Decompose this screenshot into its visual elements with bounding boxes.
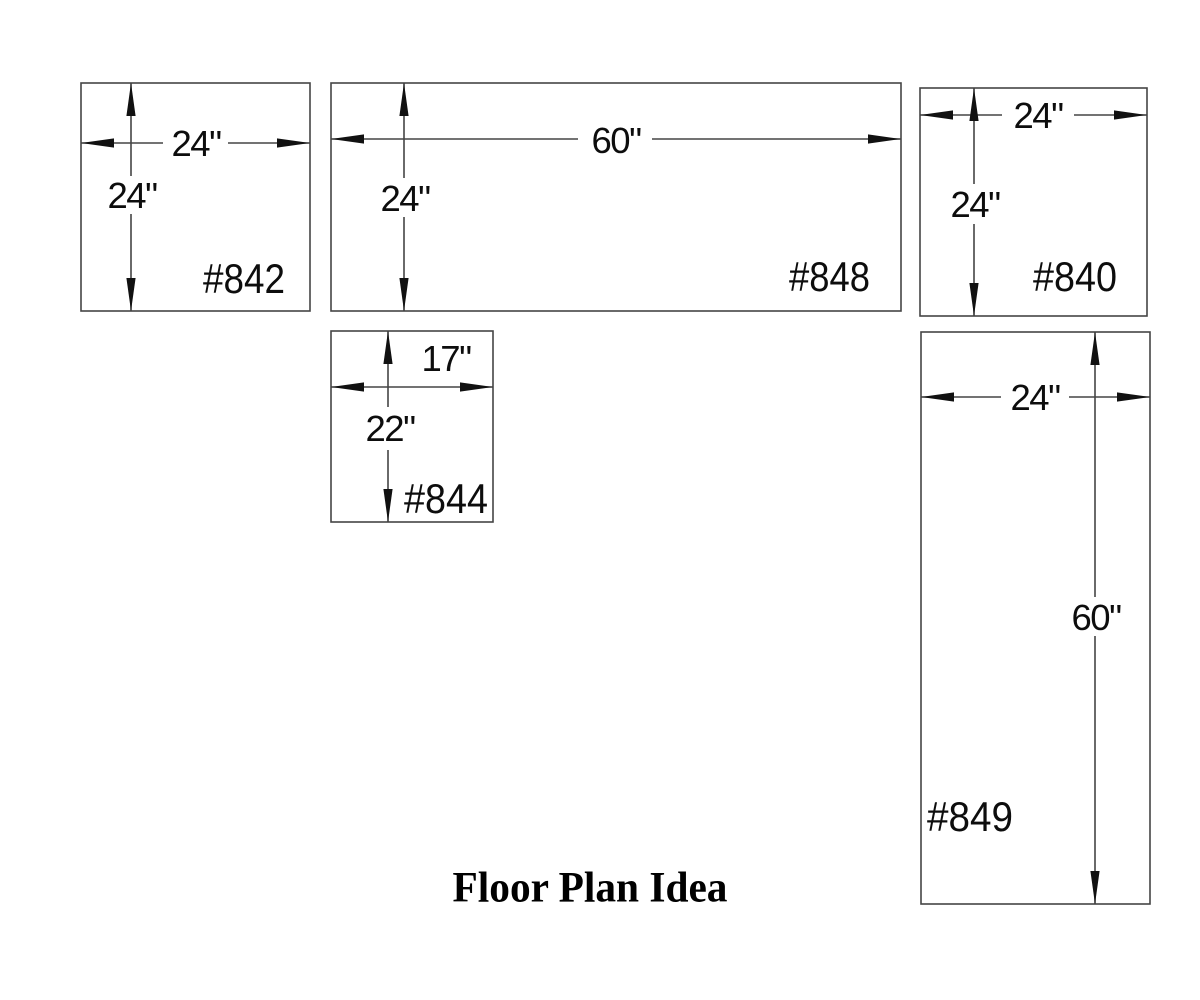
svg-text:24": 24" xyxy=(107,175,157,216)
svg-text:Floor Plan Idea: Floor Plan Idea xyxy=(453,865,728,912)
svg-text:17": 17" xyxy=(421,338,471,379)
svg-text:24": 24" xyxy=(171,123,221,164)
svg-text:60": 60" xyxy=(591,120,641,161)
svg-text:24": 24" xyxy=(950,184,1000,225)
svg-text:#849: #849 xyxy=(927,793,1013,840)
svg-text:24": 24" xyxy=(380,178,430,219)
svg-text:#848: #848 xyxy=(789,253,870,300)
svg-text:#842: #842 xyxy=(203,255,285,302)
svg-text:#840: #840 xyxy=(1033,253,1117,300)
svg-text:#844: #844 xyxy=(404,475,488,522)
svg-text:22": 22" xyxy=(365,408,415,449)
svg-text:24": 24" xyxy=(1010,377,1060,418)
svg-text:24": 24" xyxy=(1013,95,1063,136)
svg-text:60": 60" xyxy=(1071,597,1121,638)
